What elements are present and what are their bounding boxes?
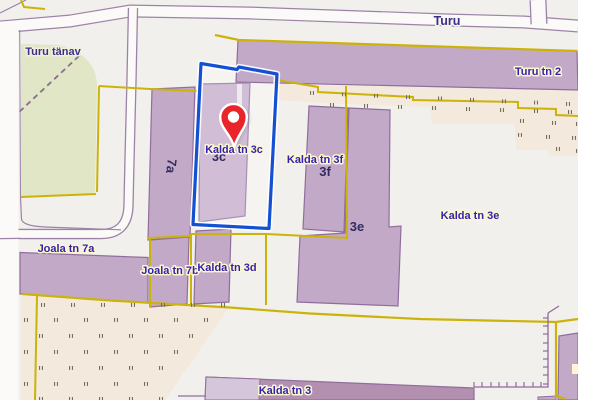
svg-text:Joala tn 7a: Joala tn 7a	[38, 243, 96, 255]
svg-text:Kalda tn 3d: Kalda tn 3d	[197, 262, 256, 274]
svg-text:Joala tn 7b: Joala tn 7b	[141, 265, 199, 277]
svg-text:Turu tänav: Turu tänav	[25, 46, 81, 58]
svg-text:7a: 7a	[163, 158, 180, 175]
svg-text:Kalda tn 3f: Kalda tn 3f	[287, 154, 344, 166]
svg-text:3e: 3e	[350, 219, 364, 234]
svg-text:3f: 3f	[319, 164, 331, 179]
svg-text:Kalda tn 3: Kalda tn 3	[259, 385, 312, 397]
svg-text:Turu: Turu	[434, 14, 461, 28]
svg-text:Turu tn 2: Turu tn 2	[515, 66, 561, 78]
svg-text:Kalda tn 3e: Kalda tn 3e	[441, 210, 500, 222]
